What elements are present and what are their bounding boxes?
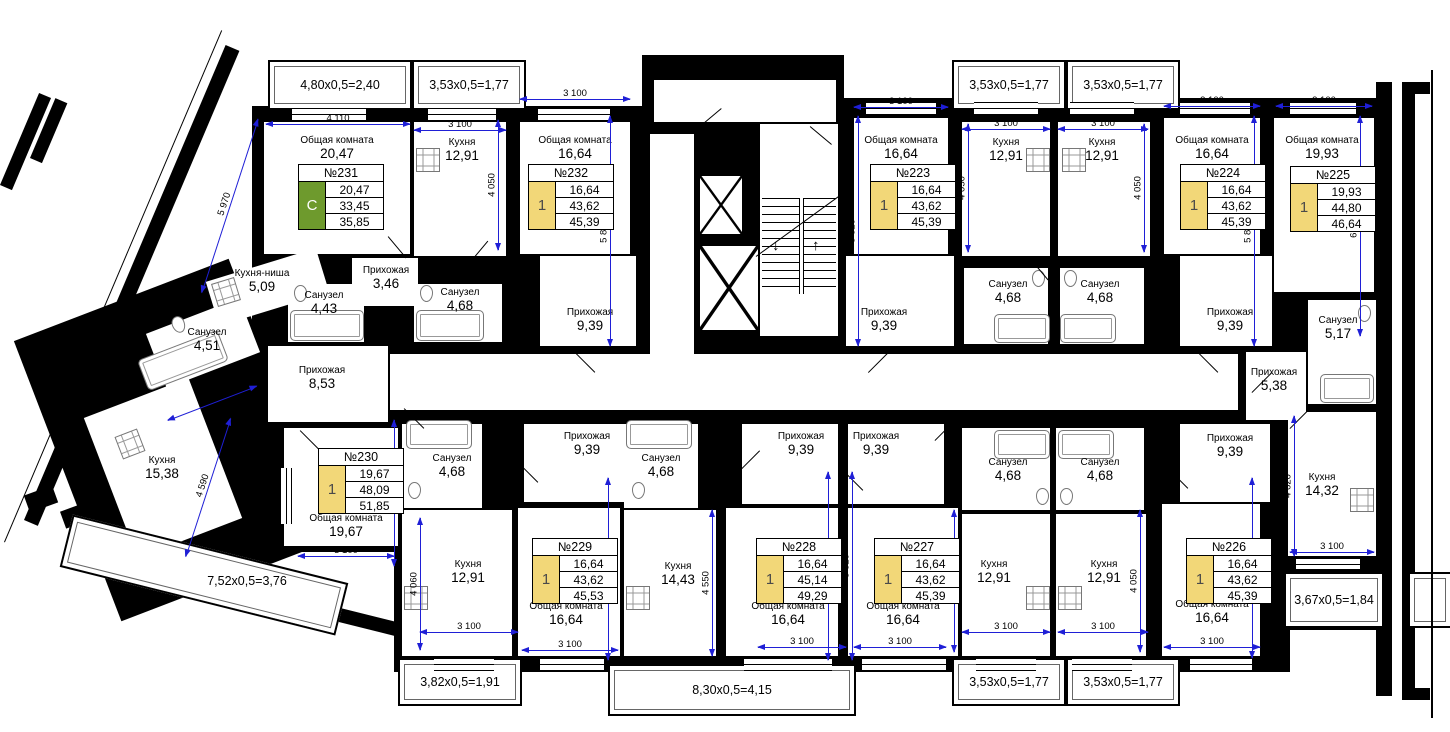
- apartment-number: №230: [319, 449, 403, 466]
- bathtub-icon: [416, 310, 484, 341]
- bathtub-icon: [1320, 374, 1374, 403]
- bathtub-icon: [994, 430, 1050, 459]
- unit-type-badge: 1: [319, 466, 346, 513]
- vestibule-glazing-2: [648, 77, 838, 78]
- room-label: Кухня12,91: [1087, 559, 1121, 585]
- dimension: 3 100: [1164, 106, 1260, 107]
- wall-neighbor-tab-top: [1402, 82, 1430, 94]
- apartment-info-227: №227 1 16,6443,6245,39: [874, 538, 960, 604]
- dimension: 3 100: [414, 130, 506, 131]
- room-label: Санузел4,68: [989, 457, 1028, 483]
- dimension: 3 100: [854, 107, 948, 108]
- room-label: Санузел4,68: [433, 453, 472, 479]
- balcony: 3,53x0,5=1,77: [412, 60, 526, 110]
- stair-arrow-down: ↓: [772, 238, 780, 253]
- room-label: Прихожая9,39: [1207, 433, 1253, 459]
- dimension: 4 550: [712, 510, 713, 656]
- room-label: Санузел5,17: [1319, 315, 1358, 341]
- apartment-number: №226: [1187, 539, 1271, 556]
- apartment-info-223: №223 1 16,6443,6245,39: [870, 164, 956, 230]
- room-label: Прихожая9,39: [853, 431, 899, 457]
- stove-icon: [626, 586, 650, 610]
- dimension: 4 050: [498, 120, 499, 250]
- dimension: 4 620: [1294, 416, 1295, 556]
- dimension: 3 100: [1290, 552, 1374, 553]
- dimension: 3 100: [962, 632, 1050, 633]
- apartment-number: №223: [871, 165, 955, 182]
- floor-plan: ↓ ↑ 4,80x0,5=2,40 3,53x0,5=1,77 3,53x0,5…: [0, 0, 1450, 732]
- window: [280, 468, 292, 524]
- wall-neighbor-tab-bottom: [1402, 688, 1430, 700]
- window: [540, 658, 604, 671]
- room-label: Санузел4,43: [305, 290, 344, 316]
- stove-icon: [1058, 586, 1082, 610]
- apartment-info-226: №226 1 16,6443,6245,39: [1186, 538, 1272, 604]
- room-label: Общая комната16,64: [751, 601, 824, 627]
- core-hall-corridor-link: [650, 336, 694, 356]
- dimension: 3 100: [854, 647, 946, 648]
- room-label: Прихожая9,39: [778, 431, 824, 457]
- room-label: Санузел4,68: [989, 279, 1028, 305]
- apartment-number: №231: [299, 165, 383, 182]
- apartment-number: №228: [757, 539, 841, 556]
- unit-type-badge: 1: [1187, 556, 1214, 603]
- window: [1072, 658, 1132, 671]
- room-label: Общая комната16,64: [864, 135, 937, 161]
- room-label: Кухня14,32: [1305, 472, 1339, 498]
- apartment-info-228: №228 1 16,6445,1449,29: [756, 538, 842, 604]
- bathtub-icon: [994, 314, 1050, 343]
- room-label: Общая комната16,64: [529, 601, 602, 627]
- vestibule-glazing-1: [648, 73, 838, 74]
- dimension: 4 050: [1144, 124, 1145, 252]
- balcony-label: 3,53x0,5=1,77: [1083, 78, 1163, 92]
- stove-icon: [1026, 586, 1050, 610]
- room-label: Общая комната19,67: [309, 513, 382, 539]
- balcony-label: 8,30x0,5=4,15: [692, 683, 772, 697]
- room-label: Кухня14,43: [661, 561, 695, 587]
- bathtub-icon: [626, 420, 692, 449]
- room-label: Прихожая3,46: [363, 265, 409, 291]
- dimension: 3 100: [1276, 106, 1372, 107]
- apartment-number: №229: [533, 539, 617, 556]
- dimension: 5 820: [1254, 116, 1255, 346]
- room-label: Общая комната16,64: [1175, 135, 1248, 161]
- core-elevator-hall: [650, 134, 694, 336]
- apartment-number: №227: [875, 539, 959, 556]
- unit-type-badge: 1: [529, 182, 556, 229]
- wall-corner-block-1: [24, 485, 58, 512]
- room-label: Прихожая8,53: [299, 365, 345, 391]
- window: [538, 108, 610, 121]
- room-label: Прихожая9,39: [861, 307, 907, 333]
- window: [1070, 102, 1134, 115]
- stair-arrow-up: ↑: [812, 238, 820, 253]
- balcony-label: 3,53x0,5=1,77: [429, 78, 509, 92]
- apartment-number: №225: [1291, 167, 1375, 184]
- unit-type-badge: C: [299, 182, 326, 229]
- window: [976, 658, 1036, 671]
- elevator-x-icon: [700, 176, 742, 234]
- stove-icon: [1062, 148, 1086, 172]
- dimension: 3 100: [522, 650, 618, 651]
- unit-type-badge: 1: [875, 556, 902, 603]
- dimension: 3 100: [420, 632, 518, 633]
- staircase-divider: [799, 198, 804, 294]
- stove-icon: [1026, 148, 1050, 172]
- room-label: Общая комната16,64: [866, 601, 939, 627]
- room-label: Кухня12,91: [989, 137, 1023, 163]
- neighbor-outline: [1431, 70, 1433, 718]
- window: [1296, 558, 1360, 570]
- balcony-label: 3,67x0,5=1,84: [1294, 593, 1374, 607]
- apartment-info-232: №232 1 16,6443,6245,39: [528, 164, 614, 230]
- window: [974, 102, 1038, 115]
- dimension: 3 100: [298, 556, 394, 557]
- room-label: Общая комната19,93: [1285, 135, 1358, 161]
- room-label: Кухня12,91: [451, 559, 485, 585]
- window: [434, 658, 494, 671]
- balcony-label: 3,53x0,5=1,77: [969, 675, 1049, 689]
- window: [1190, 658, 1252, 671]
- dimension: 3 100: [758, 647, 846, 648]
- room-label: Прихожая9,39: [567, 307, 613, 333]
- balcony-neighbor: [1408, 572, 1450, 628]
- balcony: 3,67x0,5=1,84: [1284, 572, 1384, 628]
- dimension: 4 050: [968, 124, 969, 252]
- unit-type-badge: 1: [757, 556, 784, 603]
- apartment-info-225: №225 1 19,9344,8046,64: [1290, 166, 1376, 232]
- dimension: 3 100: [962, 129, 1050, 130]
- dimension: 4 110: [266, 124, 410, 125]
- room-label: Прихожая5,38: [1251, 367, 1297, 393]
- window: [862, 658, 946, 671]
- room-label: Кухня12,91: [1085, 137, 1119, 163]
- room-label: Санузел4,68: [1081, 457, 1120, 483]
- dimension: 3 100: [1058, 632, 1148, 633]
- room-label: Санузел4,68: [642, 453, 681, 479]
- dimension: 3 100: [520, 99, 630, 100]
- elevator-x-icon: [700, 246, 758, 330]
- unit-type-badge: 1: [533, 556, 560, 603]
- room-label: Прихожая9,39: [1207, 307, 1253, 333]
- balcony: 4,80x0,5=2,40: [268, 60, 412, 110]
- apartment-info-231: №231 C 20,4733,4535,85: [298, 164, 384, 230]
- stove-icon: [416, 148, 440, 172]
- dimension: 5 820: [852, 472, 853, 660]
- dimension: 3 100: [1058, 129, 1148, 130]
- apartment-number: №232: [529, 165, 613, 182]
- room-label: Кухня12,91: [445, 137, 479, 163]
- unit-type-badge: 1: [1181, 182, 1208, 229]
- bathtub-icon: [1058, 430, 1114, 459]
- balcony-label: 7,52x0,5=3,76: [207, 574, 287, 588]
- elevator-shaft-large: [698, 244, 760, 332]
- room-label: Кухня-ниша5,09: [235, 268, 290, 294]
- balcony-label: 3,53x0,5=1,77: [1083, 675, 1163, 689]
- window: [744, 658, 832, 671]
- unit-type-badge: 1: [871, 182, 898, 229]
- unit-type-badge: 1: [1291, 184, 1318, 231]
- balcony: 8,30x0,5=4,15: [608, 664, 856, 716]
- balcony-label: 4,80x0,5=2,40: [300, 78, 380, 92]
- apartment-number: №224: [1181, 165, 1265, 182]
- apartment-info-224: №224 1 16,6443,6245,39: [1180, 164, 1266, 230]
- corridor: [390, 354, 1238, 410]
- dimension: 3 100: [1164, 647, 1260, 648]
- bathtub-icon: [1060, 314, 1116, 343]
- room-label: Санузел4,68: [1081, 279, 1120, 305]
- dimension: 5 820: [858, 116, 859, 346]
- apartment-info-229: №229 1 16,6443,6245,53: [532, 538, 618, 604]
- room-label: Кухня12,91: [977, 559, 1011, 585]
- room-label: Санузел4,51: [188, 327, 227, 353]
- apartment-info-230: №230 1 19,6748,0951,85: [318, 448, 404, 514]
- core-vestibule: [654, 80, 836, 122]
- room-label: Общая комната16,64: [538, 135, 611, 161]
- balcony-label: 3,82x0,5=1,91: [420, 675, 500, 689]
- balcony-label: 3,53x0,5=1,77: [969, 78, 1049, 92]
- dimension: 5 820: [610, 116, 611, 346]
- dimension: 4 060: [420, 518, 421, 650]
- stove-icon: [1350, 488, 1374, 512]
- room-label: Санузел4,68: [441, 287, 480, 313]
- room-label: Кухня15,38: [145, 455, 179, 481]
- dimension: 4 050: [1140, 510, 1141, 652]
- room-label: Прихожая9,39: [564, 431, 610, 457]
- room-label: Общая комната20,47: [300, 135, 373, 161]
- bathtub-icon: [406, 420, 472, 449]
- elevator-shaft-small: [698, 174, 744, 236]
